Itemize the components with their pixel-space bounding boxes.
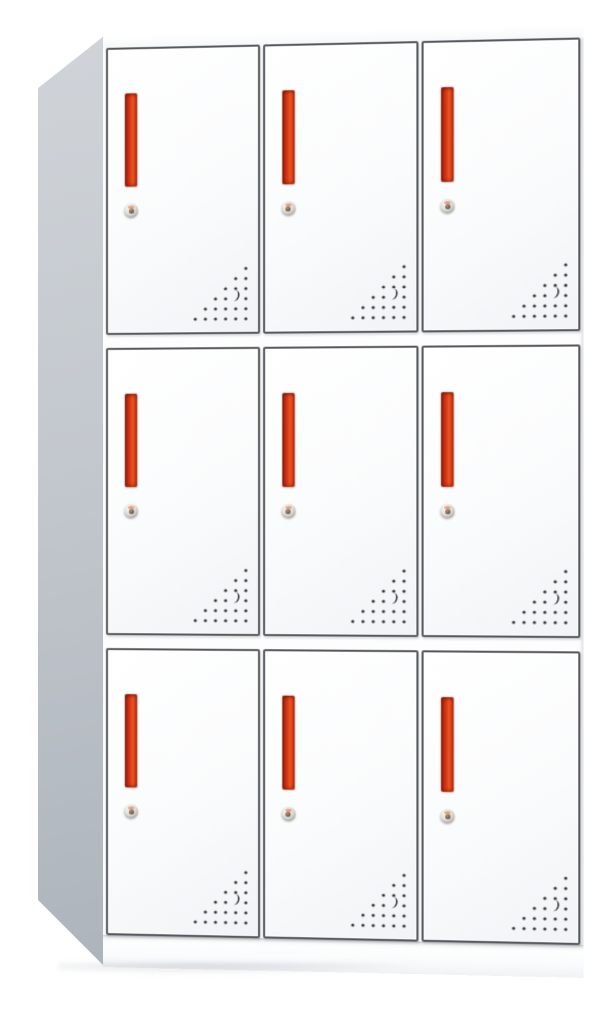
keyhole-lock (440, 199, 454, 213)
vent-holes-icon (505, 259, 570, 321)
crescent-cutout (392, 593, 398, 604)
keyhole-lock (281, 504, 295, 518)
crescent-cutout (392, 289, 398, 300)
doors-grid (103, 37, 583, 945)
door-handle (125, 394, 137, 487)
door-handle (125, 694, 137, 787)
crescent-cutout (233, 290, 239, 301)
vent-holes-icon (505, 565, 570, 627)
keyhole-lock (440, 504, 454, 518)
locker-product-photo (0, 0, 605, 1009)
crescent-cutout (392, 897, 398, 908)
door-handle (125, 93, 137, 186)
door-handle (282, 393, 294, 487)
keyhole-lock (281, 201, 295, 215)
vent-holes-icon (345, 260, 409, 321)
crescent-cutout (233, 592, 239, 603)
cabinet-side-panel (38, 36, 104, 966)
door-handle (441, 87, 453, 182)
keyhole-lock (440, 809, 454, 823)
door-r1-c1 (106, 45, 260, 335)
floor-shadow (58, 963, 563, 979)
door-handle (282, 696, 294, 790)
door-r1-c2 (263, 41, 419, 334)
door-r1-c3 (422, 38, 580, 333)
door-r2-c2 (263, 346, 419, 637)
vent-holes-icon (187, 262, 250, 323)
keyhole-lock (124, 804, 138, 818)
vent-holes-icon (505, 871, 570, 933)
crescent-cutout (233, 894, 239, 905)
door-r3-c3 (422, 650, 580, 945)
door-r2-c1 (106, 347, 260, 636)
keyhole-lock (124, 504, 138, 518)
keyhole-lock (281, 807, 295, 821)
door-handle (282, 90, 294, 184)
crescent-cutout (553, 287, 559, 298)
vent-holes-icon (187, 865, 250, 927)
door-handle (441, 697, 453, 792)
vent-holes-icon (345, 868, 409, 930)
door-r3-c2 (263, 649, 419, 942)
keyhole-lock (124, 203, 138, 217)
crescent-cutout (553, 593, 559, 604)
vent-holes-icon (187, 564, 250, 625)
door-handle (441, 392, 453, 487)
crescent-cutout (553, 900, 559, 911)
door-r2-c3 (422, 344, 580, 638)
cabinet-front (103, 25, 583, 977)
door-r3-c1 (106, 648, 260, 938)
vent-holes-icon (345, 565, 409, 626)
